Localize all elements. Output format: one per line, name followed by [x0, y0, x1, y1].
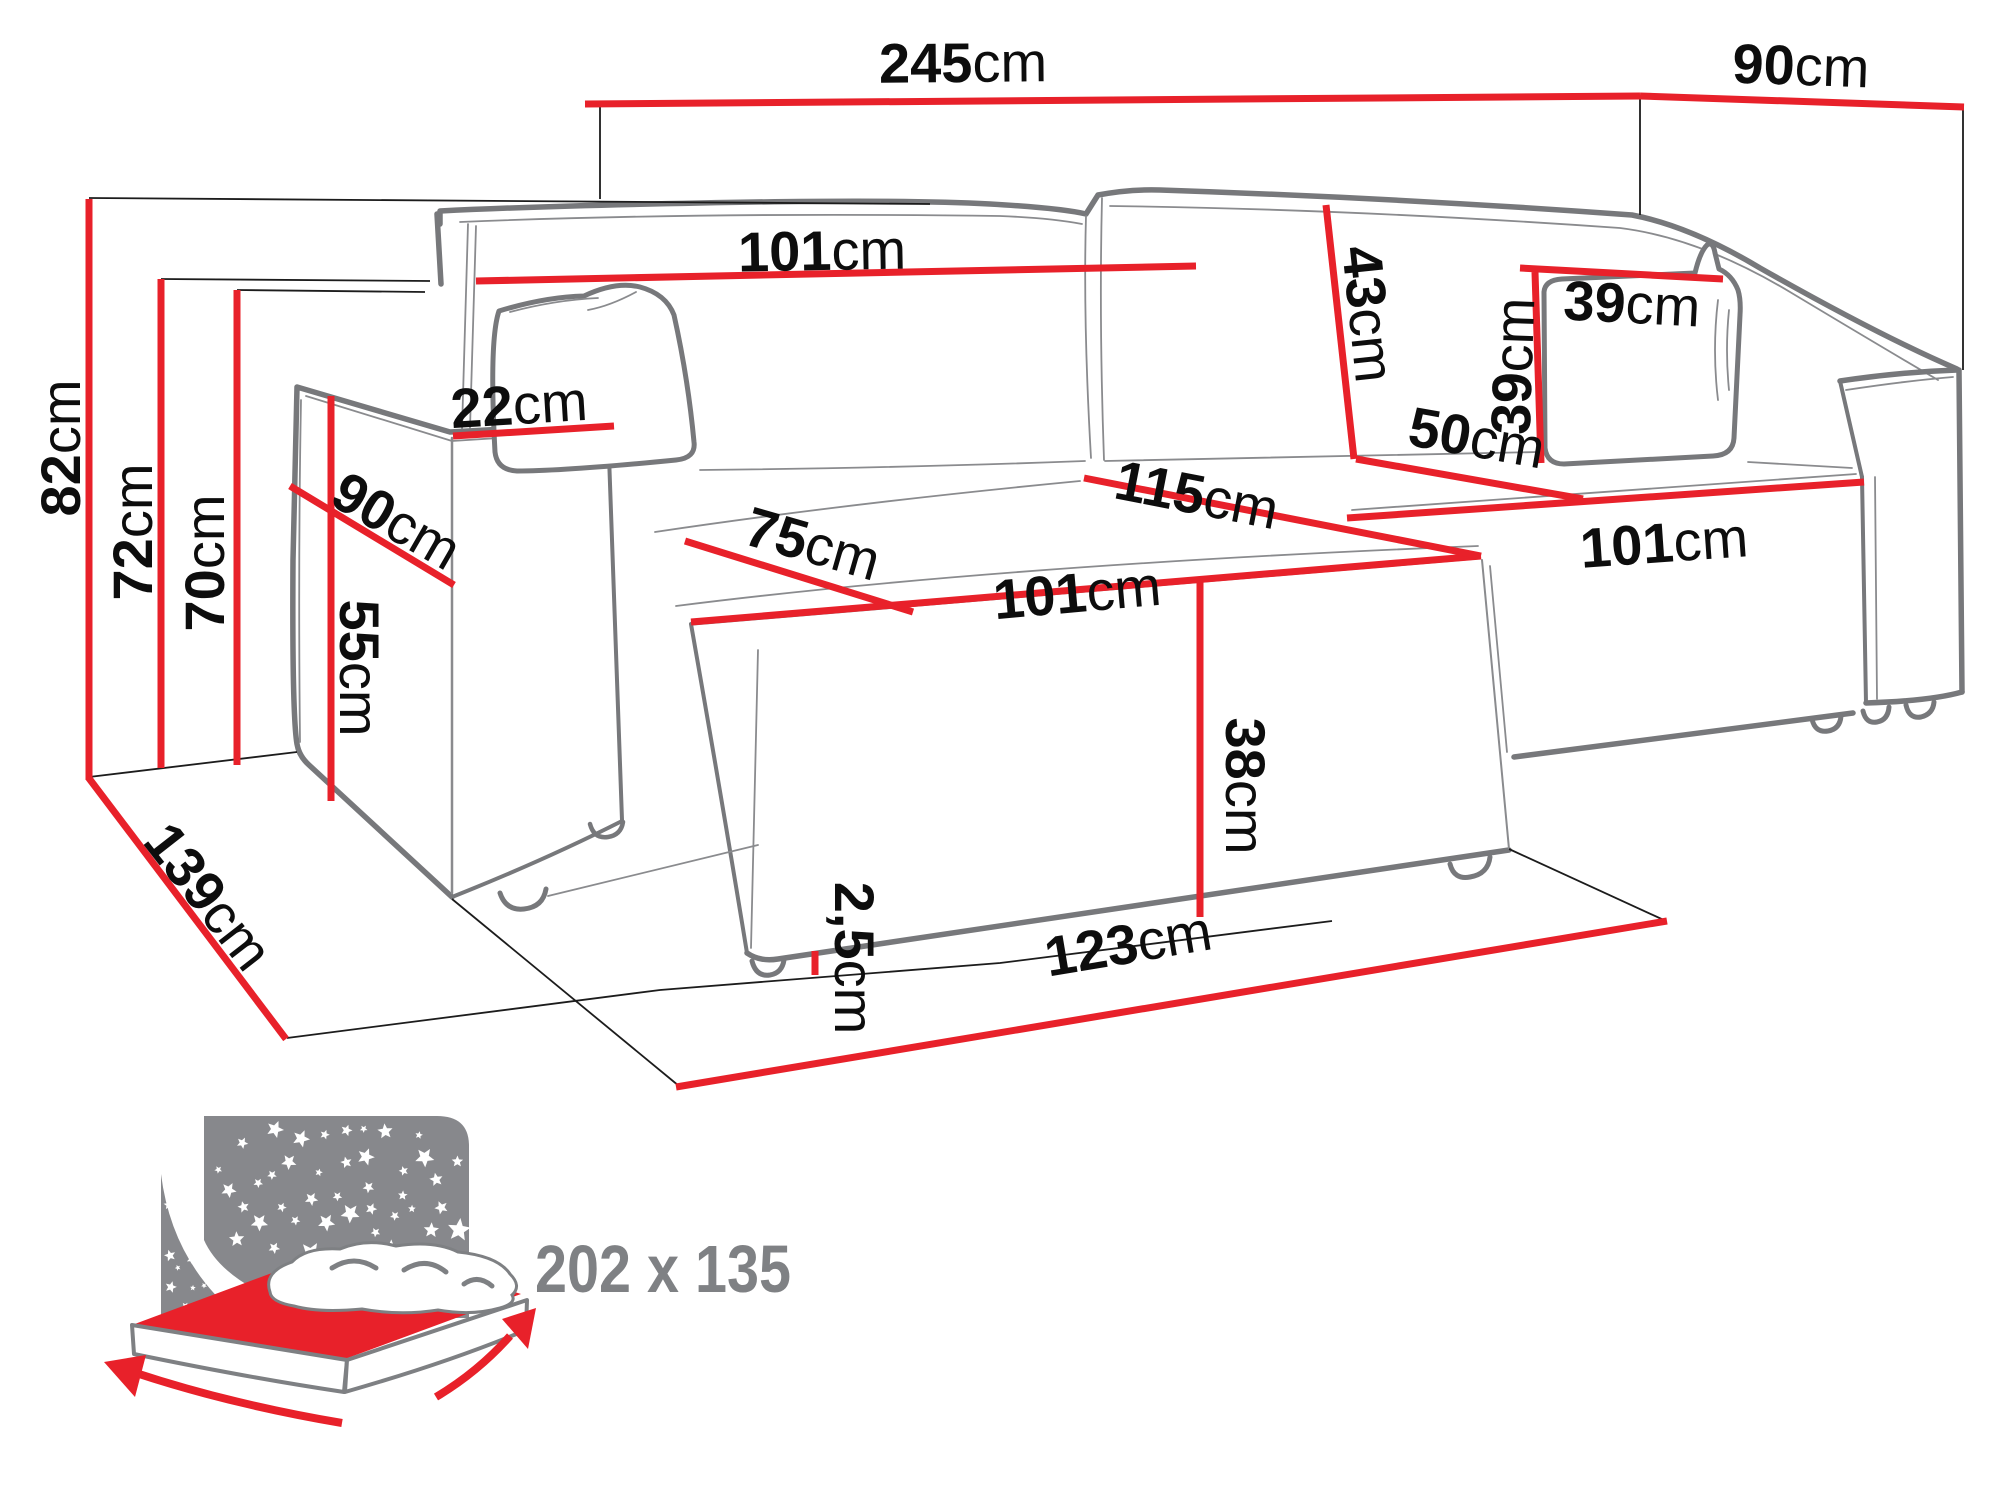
svg-text:101cm: 101cm	[1578, 505, 1750, 580]
svg-text:55cm: 55cm	[329, 600, 392, 737]
svg-text:70cm: 70cm	[173, 495, 236, 632]
svg-text:22cm: 22cm	[449, 368, 590, 439]
svg-text:82cm: 82cm	[29, 380, 92, 517]
svg-text:101cm: 101cm	[737, 217, 906, 283]
svg-text:245cm: 245cm	[879, 30, 1048, 94]
svg-text:39cm: 39cm	[1562, 268, 1702, 338]
svg-text:90cm: 90cm	[1731, 31, 1870, 99]
svg-text:72cm: 72cm	[101, 464, 164, 601]
svg-text:202 x 135: 202 x 135	[535, 1232, 791, 1307]
svg-text:38cm: 38cm	[1215, 718, 1278, 855]
svg-text:39cm: 39cm	[1478, 296, 1546, 435]
svg-text:2,5cm: 2,5cm	[824, 882, 887, 1035]
